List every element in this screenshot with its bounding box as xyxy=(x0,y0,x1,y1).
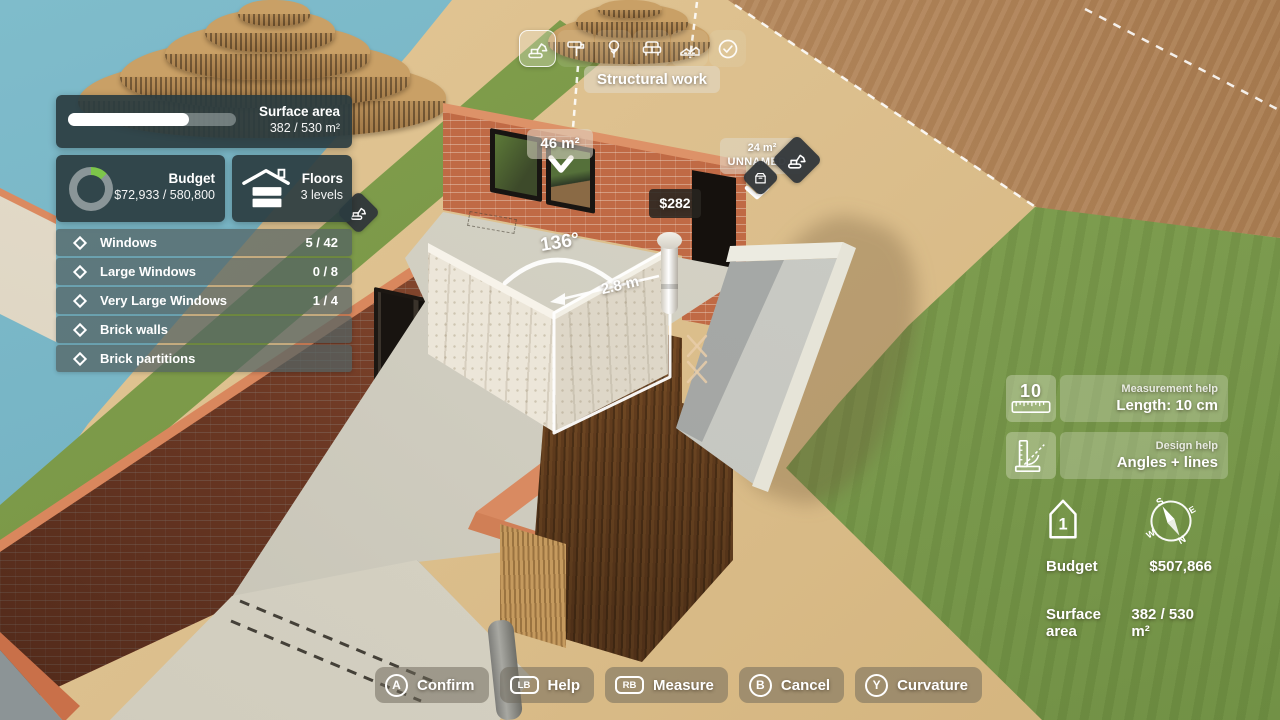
tool-tooltip: Structural work xyxy=(584,66,720,93)
measurement-help-card[interactable]: 10 Measurement help Length: 10 cm xyxy=(1006,375,1228,422)
checklist-row-windows: Windows 5 / 42 xyxy=(56,229,352,256)
budget-label: Budget xyxy=(114,171,215,187)
checklist-row-brick-partitions: Brick partitions xyxy=(56,345,352,372)
gamepad-b-icon: B xyxy=(749,674,772,697)
measurement-help-text: Measurement help Length: 10 cm xyxy=(1060,375,1228,422)
compass-icon[interactable]: S N W E xyxy=(1144,494,1198,548)
checklist-label: Brick partitions xyxy=(100,351,195,366)
plot-dash-line xyxy=(735,5,1034,206)
surface-info-label: Surface area xyxy=(1046,606,1131,640)
help-category: Measurement help xyxy=(1121,382,1218,396)
svg-text:W: W xyxy=(1145,527,1158,540)
surface-progress-fill xyxy=(68,113,189,126)
cancel-button[interactable]: B Cancel xyxy=(739,667,844,703)
wall-area-label[interactable]: 46 m² xyxy=(527,129,593,159)
checklist-label: Very Large Windows xyxy=(100,293,227,308)
x-brace-door xyxy=(688,336,706,382)
floors-value: 3 levels xyxy=(301,187,343,203)
surface-progress-bar xyxy=(68,113,236,126)
design-help-text: Design help Angles + lines xyxy=(1060,432,1228,479)
floors-label: Floors xyxy=(301,171,343,187)
curvature-button[interactable]: Y Curvature xyxy=(855,667,982,703)
selection-outline xyxy=(554,248,670,433)
budget-info-label: Budget xyxy=(1046,558,1098,575)
checklist-count: 1 / 4 xyxy=(313,293,338,308)
measure-button[interactable]: RB Measure xyxy=(605,667,728,703)
help-button[interactable]: LB Help xyxy=(500,667,595,703)
diamond-icon xyxy=(73,322,87,336)
tree-icon xyxy=(602,37,626,61)
gamepad-lb-icon: LB xyxy=(510,676,539,694)
measuring-pole xyxy=(661,240,678,314)
curvature-label: Curvature xyxy=(897,677,968,694)
budget-panel: Budget $72,933 / 580,800 xyxy=(56,155,225,222)
plot-dash-line xyxy=(1085,9,1279,110)
confirm-button[interactable]: A Confirm xyxy=(375,667,489,703)
floors-icon xyxy=(241,166,293,212)
measure-label: Measure xyxy=(653,677,714,694)
protractor-icon xyxy=(1006,432,1056,479)
check-circle-icon xyxy=(716,37,740,61)
diamond-icon xyxy=(73,264,87,278)
checklist-row-large-windows: Large Windows 0 / 8 xyxy=(56,258,352,285)
surface-area-label: Surface area xyxy=(259,104,340,120)
budget-donut xyxy=(69,167,113,211)
gamepad-a-icon: A xyxy=(385,674,408,697)
tool-painting[interactable] xyxy=(557,30,594,67)
floors-panel: Floors 3 levels xyxy=(232,155,352,222)
diamond-icon xyxy=(73,293,87,307)
gamepad-y-icon: Y xyxy=(865,674,888,697)
build-mode-toolbar xyxy=(519,30,746,67)
checklist-count: 5 / 42 xyxy=(305,235,338,250)
ruler-icon: 10 xyxy=(1006,375,1056,422)
help-value: Angles + lines xyxy=(1117,453,1218,472)
help-category: Design help xyxy=(1156,439,1218,453)
tool-landscaping[interactable] xyxy=(595,30,632,67)
crate-icon xyxy=(753,170,769,186)
tool-terrain[interactable] xyxy=(671,30,708,67)
diamond-icon xyxy=(73,235,87,249)
checklist-row-very-large-windows: Very Large Windows 1 / 4 xyxy=(56,287,352,314)
excavator-icon xyxy=(786,149,808,171)
paint-roller-icon xyxy=(564,37,588,61)
price-label: $282 xyxy=(649,189,701,218)
checklist-label: Windows xyxy=(100,235,157,250)
surface-area-value: 382 / 530 m² xyxy=(259,120,340,136)
sofa-icon xyxy=(640,37,664,61)
floor-number: 1 xyxy=(1058,516,1067,534)
checklist-label: Large Windows xyxy=(100,264,196,279)
surface-info-row: Surface area 382 / 530 m² xyxy=(1046,606,1212,640)
chevron-down-icon xyxy=(551,158,571,170)
svg-text:N: N xyxy=(1176,534,1188,547)
budget-info-value: $507,866 xyxy=(1149,558,1212,575)
terrain-icon xyxy=(678,37,702,61)
tool-structural-work[interactable] xyxy=(519,30,556,67)
measuring-pole-band xyxy=(661,284,678,289)
checklist-row-brick-walls: Brick walls xyxy=(56,316,352,343)
surface-area-panel: Surface area 382 / 530 m² xyxy=(56,95,352,148)
tool-furnishing[interactable] xyxy=(633,30,670,67)
budget-info-row: Budget $507,866 xyxy=(1046,558,1212,575)
game-viewport[interactable]: 136° 2.8 m 46 m² $282 24 m² UNNAMED 4 xyxy=(0,0,1280,720)
diamond-icon xyxy=(73,351,87,365)
design-help-card[interactable]: Design help Angles + lines xyxy=(1006,432,1228,479)
surface-info-value: 382 / 530 m² xyxy=(1131,606,1212,640)
ruler-value: 10 xyxy=(1020,383,1042,400)
checklist-label: Brick walls xyxy=(100,322,168,337)
budget-value: $72,933 / 580,800 xyxy=(114,187,215,203)
help-value: Length: 10 cm xyxy=(1116,396,1218,415)
gamepad-rb-icon: RB xyxy=(615,676,644,694)
gamepad-action-bar: A Confirm LB Help RB Measure B Cancel Y … xyxy=(375,667,982,703)
measuring-pole-cap xyxy=(657,232,682,249)
excavator-icon xyxy=(526,37,550,61)
plot-dash-line xyxy=(573,66,578,128)
help-label: Help xyxy=(548,677,581,694)
checklist-count: 0 / 8 xyxy=(313,264,338,279)
ruler-glyph xyxy=(1011,400,1051,414)
cancel-label: Cancel xyxy=(781,677,830,694)
tool-validate[interactable] xyxy=(709,30,746,67)
confirm-label: Confirm xyxy=(417,677,475,694)
floor-indicator-icon[interactable]: 1 xyxy=(1045,496,1081,542)
